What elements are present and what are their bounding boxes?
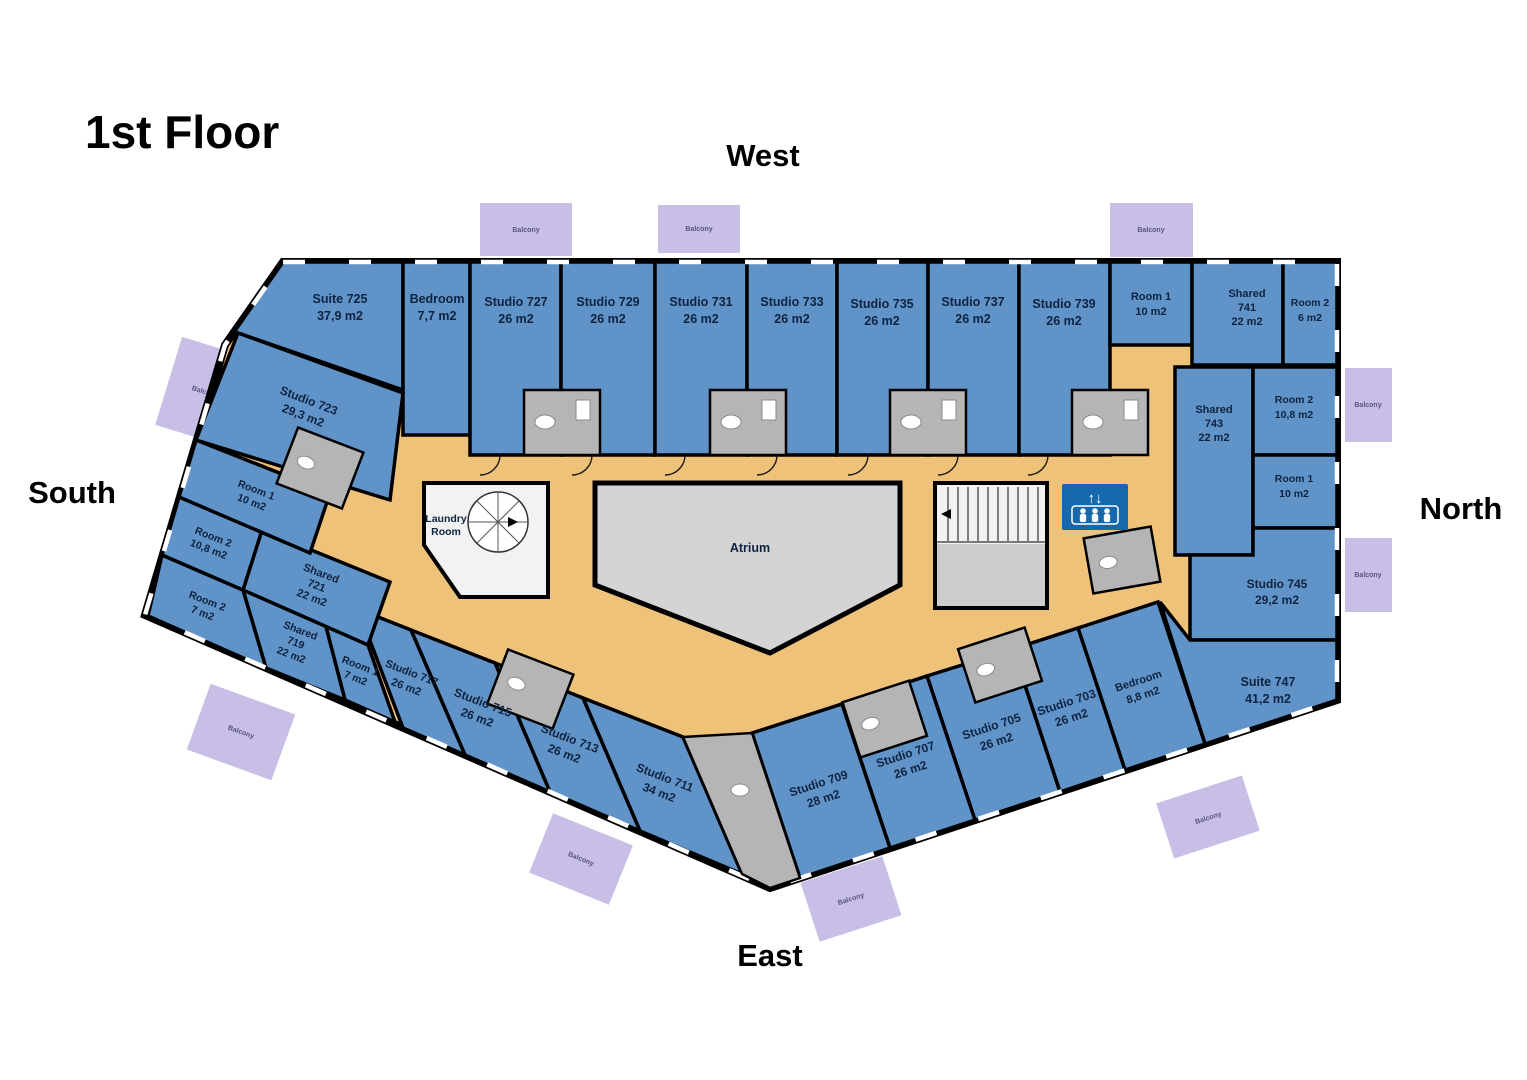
svg-text:10 m2: 10 m2 [1279, 488, 1309, 500]
balcony: Balcony [1345, 538, 1392, 612]
bathroom-pod [890, 390, 966, 455]
balcony-label: Balcony [1354, 572, 1381, 579]
balcony-label: Balcony [1137, 227, 1164, 234]
svg-text:Studio 739: Studio 739 [1032, 297, 1095, 311]
svg-text:41,2 m2: 41,2 m2 [1245, 692, 1291, 706]
room-bedroom-725 [403, 262, 470, 435]
spiral-staircase-icon [468, 492, 528, 552]
svg-text:Studio 745: Studio 745 [1247, 577, 1308, 591]
bathroom-pod [524, 390, 600, 455]
balcony-label: Balcony [512, 227, 539, 234]
balcony-label: Balcony [685, 226, 712, 233]
svg-text:26 m2: 26 m2 [590, 312, 625, 326]
svg-text:Studio 731: Studio 731 [669, 295, 732, 309]
balcony: Balcony [480, 203, 572, 256]
svg-text:Studio 733: Studio 733 [760, 295, 823, 309]
balcony: Balcony [1110, 203, 1193, 257]
room-room1-741 [1110, 262, 1192, 345]
svg-text:Suite 747: Suite 747 [1241, 675, 1296, 689]
svg-text:7,7 m2: 7,7 m2 [418, 309, 457, 323]
svg-text:743: 743 [1205, 418, 1223, 430]
svg-text:6 m2: 6 m2 [1298, 312, 1322, 324]
svg-text:Studio 737: Studio 737 [941, 295, 1004, 309]
staircase-icon [935, 483, 1047, 608]
bathroom-pod [1072, 390, 1148, 455]
room-shared-743 [1175, 367, 1253, 555]
compass-east: East [737, 938, 802, 973]
svg-text:Studio 735: Studio 735 [850, 297, 913, 311]
svg-text:Room 2: Room 2 [1275, 394, 1314, 406]
atrium-label: Atrium [730, 541, 770, 555]
floor-title: 1st Floor [85, 106, 279, 158]
svg-text:741: 741 [1238, 302, 1256, 314]
svg-text:Bedroom: Bedroom [410, 292, 465, 306]
floor-plan: Balcony Balcony Balcony Balcony Balcony … [0, 0, 1527, 1080]
svg-text:37,9 m2: 37,9 m2 [317, 309, 363, 323]
svg-text:Room 2: Room 2 [1291, 297, 1330, 309]
laundry-label: Room [431, 526, 461, 538]
balcony: Balcony [529, 813, 633, 905]
bathroom-pod [710, 390, 786, 455]
compass-north: North [1420, 491, 1503, 526]
compass-west: West [726, 138, 800, 173]
balcony: Balcony [187, 684, 296, 781]
balcony-label: Balcony [1354, 402, 1381, 409]
svg-text:22 m2: 22 m2 [1231, 316, 1262, 328]
svg-text:Suite 725: Suite 725 [313, 292, 368, 306]
svg-text:Room 1: Room 1 [1131, 291, 1171, 303]
elevator-icon: ↑↓ [1062, 484, 1128, 530]
svg-text:26 m2: 26 m2 [774, 312, 809, 326]
laundry-label: Laundry [425, 513, 467, 525]
balcony: Balcony [1345, 368, 1392, 442]
balcony: Balcony [1156, 776, 1260, 859]
svg-text:10 m2: 10 m2 [1135, 306, 1166, 318]
svg-text:Shared: Shared [1228, 288, 1265, 300]
svg-text:22 m2: 22 m2 [1198, 432, 1229, 444]
elevator-arrows-icon: ↑↓ [1088, 490, 1103, 507]
svg-text:Studio 727: Studio 727 [484, 295, 547, 309]
svg-text:10,8 m2: 10,8 m2 [1275, 409, 1314, 421]
svg-text:26 m2: 26 m2 [955, 312, 990, 326]
compass-south: South [28, 475, 116, 510]
balcony: Balcony [658, 205, 740, 253]
svg-text:Room 1: Room 1 [1275, 473, 1314, 485]
svg-text:26 m2: 26 m2 [1046, 314, 1081, 328]
svg-text:Shared: Shared [1195, 404, 1232, 416]
svg-text:Studio 729: Studio 729 [576, 295, 639, 309]
svg-text:26 m2: 26 m2 [498, 312, 533, 326]
svg-text:26 m2: 26 m2 [683, 312, 718, 326]
svg-text:29,2 m2: 29,2 m2 [1255, 593, 1299, 607]
floor-plan-page: Balcony Balcony Balcony Balcony Balcony … [0, 0, 1527, 1080]
bathroom-pod [1084, 527, 1161, 594]
svg-text:26 m2: 26 m2 [864, 314, 899, 328]
